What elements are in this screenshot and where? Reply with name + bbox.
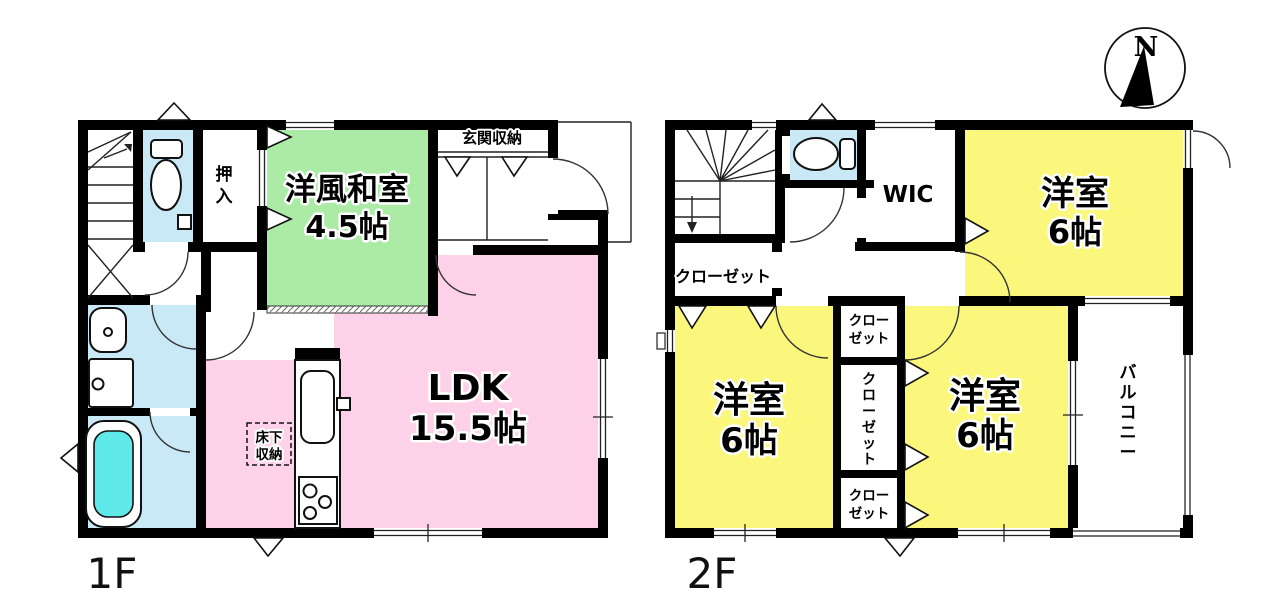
svg-text:ゼ: ゼ xyxy=(862,419,876,436)
oshiire-label-char2: 入 xyxy=(216,187,233,207)
closet-bottom-line1: クロー xyxy=(849,488,890,504)
floorplan-image: 洋風和室 4.5帖 LDK 15.5帖 玄関収納 押 入 床下 収納 1F 洋室… xyxy=(0,0,1280,606)
closet-bottom-line2: ゼット xyxy=(849,505,890,522)
entrance-porch xyxy=(558,122,631,242)
closet-door-mark xyxy=(502,157,527,176)
svg-text:ロ: ロ xyxy=(862,388,876,404)
room-ldk-size: 15.5帖 xyxy=(409,409,527,449)
svg-text:バ: バ xyxy=(1120,363,1137,383)
closet-vertical-label: ク ロ ー ゼ ッ ト xyxy=(862,372,876,468)
bedroom-left-size: 6帖 xyxy=(720,421,778,461)
bedroom-right-size: 6帖 xyxy=(956,416,1014,456)
floor1-label: 1F xyxy=(87,549,138,598)
tatami-ldk-threshold-hatch xyxy=(267,306,428,313)
floor2-label: 2F xyxy=(687,549,738,598)
wic-label: WIC xyxy=(883,182,934,208)
vent-mark xyxy=(254,538,283,556)
hall-closet-label: クローゼット xyxy=(675,267,771,286)
vent-mark xyxy=(885,538,914,556)
bedroom-left-name: 洋室 xyxy=(713,380,785,421)
vent-mark xyxy=(158,103,190,120)
svg-text:ル: ル xyxy=(1120,383,1137,403)
underfloor-storage-line2: 収納 xyxy=(256,446,283,463)
oshiire-label-char1: 押 xyxy=(216,164,233,185)
stairs-down-arrow xyxy=(687,222,697,233)
svg-text:ト: ト xyxy=(862,452,876,468)
compass-north-icon: N xyxy=(1105,28,1185,108)
bedroom-top-name: 洋室 xyxy=(1041,174,1109,214)
entrance-storage-label: 玄関収納 xyxy=(462,129,522,147)
svg-text:ク: ク xyxy=(862,372,876,388)
floor-plan-canvas: 洋風和室 4.5帖 LDK 15.5帖 玄関収納 押 入 床下 収納 1F 洋室… xyxy=(0,0,1280,606)
washing-machine-icon xyxy=(89,359,133,407)
bathtub-icon xyxy=(86,421,141,527)
stairs-2f-icon xyxy=(675,130,775,234)
balcony-vertical-label: バ ル コ ニ ー xyxy=(1120,363,1137,463)
svg-text:コ: コ xyxy=(1120,403,1137,423)
room-tatami-size: 4.5帖 xyxy=(305,210,388,245)
bedroom-right-name: 洋室 xyxy=(949,376,1021,417)
washbasin-icon xyxy=(90,308,126,352)
vent-mark xyxy=(809,104,836,120)
bedroom-top-size: 6帖 xyxy=(1048,213,1102,251)
closet-door-mark xyxy=(445,157,470,176)
room-ldk-name: LDK xyxy=(428,368,510,409)
svg-text:ー: ー xyxy=(862,404,876,420)
vent-mark xyxy=(61,444,78,472)
svg-text:ニ: ニ xyxy=(1120,423,1137,443)
stove-icon xyxy=(299,477,337,524)
svg-text:ッ: ッ xyxy=(862,436,876,452)
toilet-icon-2f xyxy=(794,138,855,170)
svg-text:ー: ー xyxy=(1120,443,1137,463)
compass-north-label: N xyxy=(1134,32,1159,63)
stairs-1f-icon xyxy=(88,132,133,298)
underfloor-storage-line1: 床下 xyxy=(256,429,283,446)
room-tatami-name: 洋風和室 xyxy=(285,172,409,208)
closet-top-line1: クロー xyxy=(849,313,890,329)
closet-top-line2: ゼット xyxy=(849,330,890,347)
